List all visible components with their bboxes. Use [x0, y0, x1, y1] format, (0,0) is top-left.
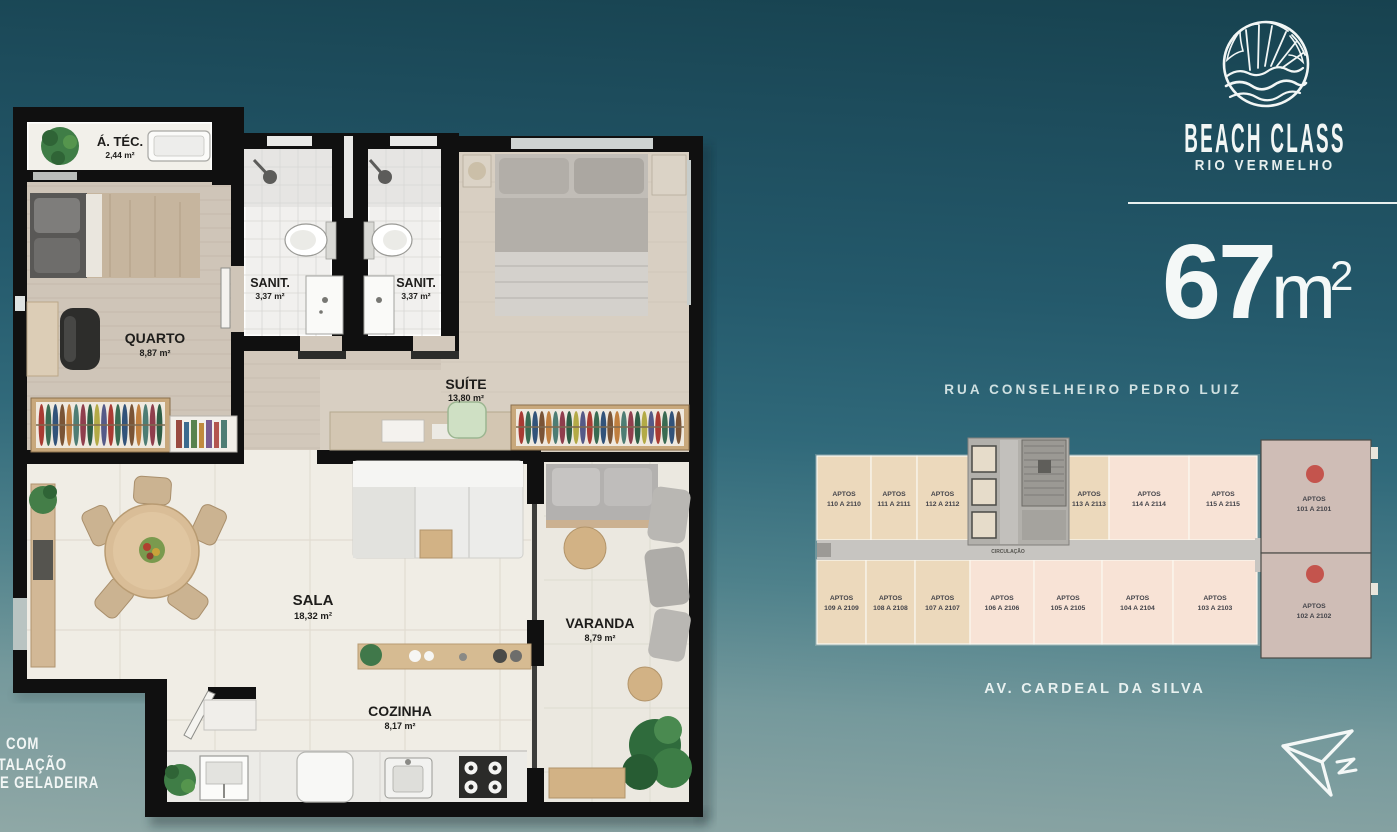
svg-text:APTOS: APTOS	[931, 491, 955, 498]
svg-text:115 A 2115: 115 A 2115	[1206, 501, 1240, 508]
svg-text:APTOS: APTOS	[1126, 595, 1150, 602]
svg-text:13,80 m²: 13,80 m²	[448, 393, 484, 403]
svg-text:8,17 m²: 8,17 m²	[384, 721, 415, 731]
svg-text:COZINHA: COZINHA	[368, 703, 432, 719]
svg-text:2,44 m²: 2,44 m²	[105, 150, 134, 160]
svg-text:8,79 m²: 8,79 m²	[584, 633, 615, 643]
svg-text:APTOS: APTOS	[990, 595, 1014, 602]
svg-text:108 A 2108: 108 A 2108	[873, 605, 908, 612]
svg-text:112 A 2112: 112 A 2112	[926, 501, 960, 508]
svg-text:103 A 2103: 103 A 2103	[1198, 605, 1233, 612]
svg-text:105 A 2105: 105 A 2105	[1051, 605, 1086, 612]
svg-text:106 A 2106: 106 A 2106	[985, 605, 1020, 612]
svg-text:102 A 2102: 102 A 2102	[1297, 613, 1332, 620]
svg-text:COM: COM	[6, 735, 39, 754]
svg-text:APTOS: APTOS	[832, 491, 856, 498]
svg-text:APTOS: APTOS	[882, 491, 906, 498]
svg-text:QUARTO: QUARTO	[125, 330, 186, 346]
svg-text:104 A 2104: 104 A 2104	[1120, 605, 1155, 612]
svg-text:SANIT.: SANIT.	[250, 276, 290, 290]
svg-text:APTOS: APTOS	[879, 595, 903, 602]
svg-text:3,37 m²: 3,37 m²	[401, 291, 430, 301]
svg-text:2: 2	[1330, 252, 1353, 299]
svg-text:CIRCULAÇÃO: CIRCULAÇÃO	[991, 548, 1025, 555]
svg-text:3,37 m²: 3,37 m²	[255, 291, 284, 301]
svg-text:BEACH CLASS: BEACH CLASS	[1184, 115, 1346, 161]
svg-text:STALAÇÃO: STALAÇÃO	[0, 754, 67, 774]
svg-text:APTOS: APTOS	[1302, 603, 1326, 610]
svg-text:SANIT.: SANIT.	[396, 276, 436, 290]
svg-text:8,87 m²: 8,87 m²	[139, 348, 170, 358]
svg-text:APTOS: APTOS	[1056, 595, 1080, 602]
svg-text:110 A 2110: 110 A 2110	[827, 501, 861, 508]
svg-text:APTOS: APTOS	[1077, 491, 1101, 498]
svg-text:107 A 2107: 107 A 2107	[925, 605, 960, 612]
svg-text:113 A 2113: 113 A 2113	[1072, 501, 1106, 508]
svg-text:18,32 m²: 18,32 m²	[294, 611, 332, 622]
svg-text:SALA: SALA	[293, 592, 334, 609]
svg-text:114 A 2114: 114 A 2114	[1132, 501, 1166, 508]
svg-text:RUA CONSELHEIRO PEDRO LUIZ: RUA CONSELHEIRO PEDRO LUIZ	[944, 382, 1242, 397]
svg-text:Á. TÉC.: Á. TÉC.	[97, 134, 143, 149]
svg-text:APTOS: APTOS	[1211, 491, 1235, 498]
svg-text:E GELADEIRA: E GELADEIRA	[0, 774, 99, 793]
svg-text:VARANDA: VARANDA	[566, 615, 635, 631]
svg-text:67: 67	[1162, 223, 1274, 341]
svg-text:AV. CARDEAL DA SILVA: AV. CARDEAL DA SILVA	[984, 681, 1205, 697]
svg-text:101 A 2101: 101 A 2101	[1297, 506, 1332, 513]
svg-text:APTOS: APTOS	[1302, 496, 1326, 503]
svg-text:m: m	[1271, 247, 1336, 335]
svg-text:109 A 2109: 109 A 2109	[824, 605, 859, 612]
svg-text:111 A 2111: 111 A 2111	[877, 501, 910, 508]
svg-text:APTOS: APTOS	[1203, 595, 1227, 602]
svg-text:APTOS: APTOS	[830, 595, 854, 602]
svg-text:SUÍTE: SUÍTE	[445, 376, 486, 392]
svg-text:RIO VERMELHO: RIO VERMELHO	[1195, 156, 1335, 173]
svg-text:APTOS: APTOS	[931, 595, 955, 602]
svg-text:APTOS: APTOS	[1137, 491, 1161, 498]
